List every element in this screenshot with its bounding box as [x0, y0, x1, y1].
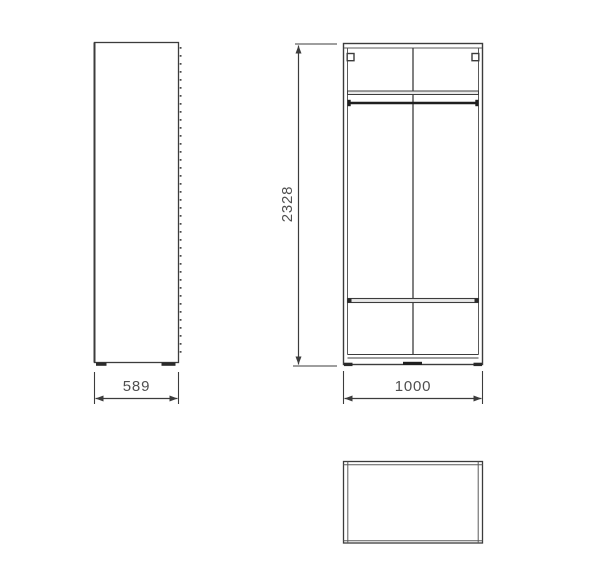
front-view-lower-shelf-end-right [475, 299, 479, 303]
front-view-top-shelf [348, 91, 479, 95]
front-view: 2328 1000 [279, 44, 483, 405]
dimension-width-label: 1000 [395, 378, 432, 395]
side-view: 589 [95, 43, 181, 405]
dimension-depth-label: 589 [123, 378, 150, 395]
front-view-lower-shelf-end-left [348, 299, 352, 303]
front-view-rail-bracket-right [475, 100, 478, 106]
dimension-height: 2328 [279, 44, 337, 366]
drawing-canvas: 589 232 [0, 0, 600, 585]
front-view-lower-shelf [348, 299, 479, 303]
wardrobe-technical-drawing: 589 232 [0, 0, 600, 585]
front-view-hinge-left [347, 54, 354, 61]
dimension-depth: 589 [95, 372, 179, 404]
top-view-outline [344, 462, 483, 544]
top-view [344, 462, 483, 544]
side-view-foot-left [96, 363, 107, 366]
dimension-height-label: 2328 [279, 186, 296, 223]
front-view-foot-left [344, 363, 353, 366]
front-view-foot-right [474, 363, 483, 366]
front-view-rail-bracket-left [348, 100, 351, 106]
front-view-foot-center [403, 362, 422, 365]
side-view-foot-right [162, 363, 176, 366]
front-view-hinge-right [472, 54, 479, 61]
dimension-width: 1000 [344, 371, 483, 404]
side-view-outline [95, 43, 179, 363]
